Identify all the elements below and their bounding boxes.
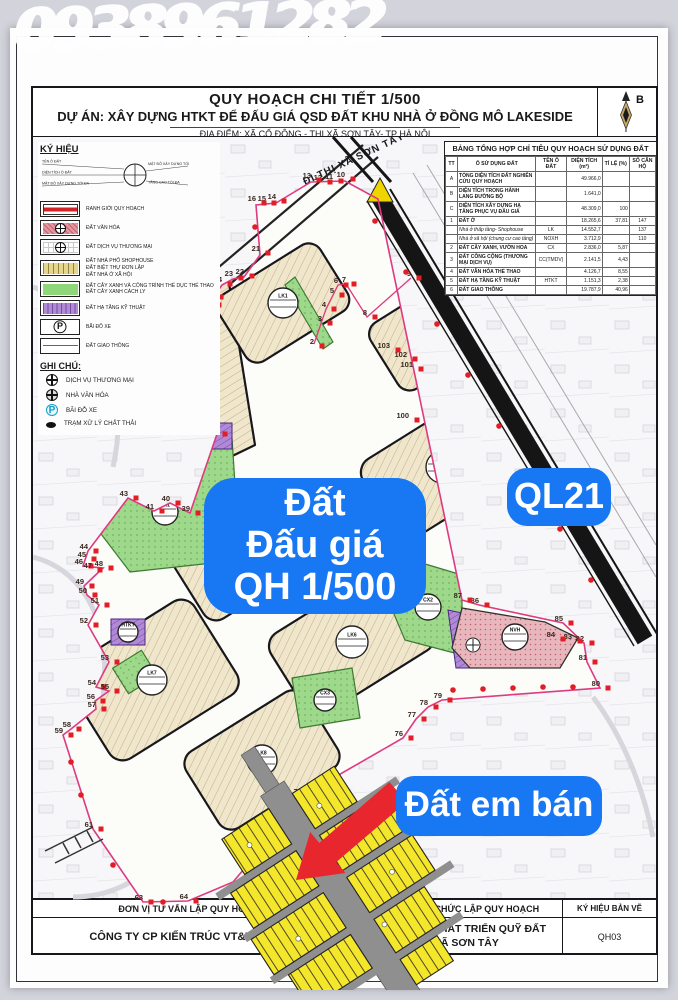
parking-glyph-icon: P — [54, 320, 67, 333]
table-cell — [629, 202, 655, 217]
legend-item-label: ĐẤT HẠ TẦNG KỸ THUẬT — [86, 305, 145, 312]
table-cell: ĐẤT CÂY XANH, VƯỜN HOA — [458, 244, 536, 253]
lot-symbol-diagram: TÊN Ô ĐẤT DIỆN TÍCH Ô ĐẤT MẬT ĐỘ XÂY DỰN… — [40, 157, 190, 193]
agency-name: TRUNG TÂM PHÁT TRIỂN QUỸ ĐẤT THỊ XÃ SƠN … — [351, 918, 563, 955]
table-cell: 4,43 — [602, 253, 629, 268]
compass-north-label: B — [636, 94, 644, 106]
auction-label-line2: Đấu giá — [204, 525, 426, 567]
sheet-code: QH03 — [563, 918, 656, 955]
table-cell: 4.126,7 — [566, 268, 602, 277]
table-cell: ĐẤT Ở — [458, 217, 536, 226]
table-cell: TỔNG DIỆN TÍCH ĐẤT NGHIÊN CỨU QUY HOẠCH — [458, 172, 536, 187]
note-item-label: DỊCH VỤ THƯƠNG MẠI — [66, 377, 134, 384]
lot-note-right-1: MẬT ĐỘ XÂY DỰNG TỐI ĐA (%) — [148, 161, 190, 166]
table-cell: 1 — [446, 217, 458, 226]
title-block: QUY HOẠCH CHI TIẾT 1/500 DỰ ÁN: XÂY DỰNG… — [33, 88, 598, 137]
note-item-label: BÃI ĐỖ XE — [66, 407, 97, 414]
table-cell: 5 — [446, 277, 458, 286]
table-column-header: TT — [446, 157, 458, 172]
table-cell: 110 — [629, 235, 655, 244]
table-cell: 137 — [629, 226, 655, 235]
table-column-header: SỐ CĂN HỘ — [629, 157, 655, 172]
legend-item-label: ĐẤT GIAO THÔNG — [86, 343, 129, 350]
table-column-header: TỈ LỆ (%) — [602, 157, 629, 172]
table-title: BẢNG TỔNG HỢP CHỈ TIÊU QUY HOẠCH SỬ DỤNG… — [445, 142, 656, 156]
table-cell — [629, 277, 655, 286]
table-cell: 6 — [446, 286, 458, 295]
legend-swatch-commerce — [40, 239, 80, 255]
table-row: 2ĐẤT CÂY XANH, VƯỜN HOACX2.836,05,87 — [446, 244, 656, 253]
table-row: Nhà ở thấp tầng- ShophouseLK14.552,7137 — [446, 226, 656, 235]
table-cell — [536, 172, 566, 187]
table-cell — [536, 187, 566, 202]
legend-item: RANH GIỚI QUY HOẠCH — [40, 201, 218, 217]
notes-title: GHI CHÚ: — [40, 361, 218, 371]
table-cell: DIỆN TÍCH TRONG HÀNH LANG ĐƯỜNG BỘ — [458, 187, 536, 202]
agency-name-line1: TRUNG TÂM PHÁT TRIỂN QUỸ ĐẤT — [367, 923, 546, 936]
table-cell: 14.552,7 — [566, 226, 602, 235]
table-cell: A — [446, 172, 458, 187]
legend-item: ĐẤT CÂY XANH VÀ CÔNG TRÌNH THỂ DỤC THỂ T… — [40, 281, 218, 297]
legend-title: KÝ HIỆU — [40, 144, 218, 155]
table-cell: 2.141,5 — [566, 253, 602, 268]
table-cell — [536, 286, 566, 295]
consultant-header: ĐƠN VỊ TƯ VẤN LẬP QUY HOẠCH — [33, 900, 351, 918]
agency-header: CƠ QUAN TỔ CHỨC LẬP QUY HOẠCH — [351, 900, 563, 918]
table-row: 4ĐẤT VĂN HÓA THỂ THAO4.126,78,55 — [446, 268, 656, 277]
legend-swatch-traffic — [40, 338, 80, 354]
table-cell: ĐẤT CÔNG CỘNG (THƯƠNG MẠI DỊCH VỤ) — [458, 253, 536, 268]
consultant-name: CÔNG TY CP KIẾN TRÚC VT&T HÀ NỘI — [33, 918, 351, 955]
note-item: PBÃI ĐỖ XE — [40, 404, 218, 416]
commerce-circle-icon — [46, 374, 58, 386]
table-cell: 2,38 — [602, 277, 629, 286]
culture-circle-icon — [46, 389, 58, 401]
table-cell: 19.787,9 — [566, 286, 602, 295]
project-title: DỰ ÁN: XÂY DỰNG HTKT ĐỂ ĐẤU GIÁ QSD ĐẤT … — [33, 109, 597, 124]
table-cell — [629, 253, 655, 268]
waste-plant-icon — [46, 422, 56, 428]
table-row: ATỔNG DIỆN TÍCH ĐẤT NGHIÊN CỨU QUY HOẠCH… — [446, 172, 656, 187]
table-cell: ĐẤT GIAO THÔNG — [458, 286, 536, 295]
culture-glyph-icon — [55, 223, 66, 234]
table-cell: CX — [536, 244, 566, 253]
agency-name-line2: THỊ XÃ SƠN TÂY — [414, 937, 499, 950]
legend-items: RANH GIỚI QUY HOẠCHĐẤT VĂN HÓAĐẤT DỊCH V… — [40, 201, 218, 354]
table-column-header: Ô SỬ DỤNG ĐẤT — [458, 157, 536, 172]
compass-box: B — [598, 88, 656, 137]
north-compass-icon: B — [598, 88, 656, 135]
table-cell — [602, 226, 629, 235]
table-cell: NOXH — [536, 235, 566, 244]
commerce-glyph-icon — [55, 242, 66, 253]
table-column-header: DIỆN TÍCH (m²) — [566, 157, 602, 172]
table-cell: 4 — [446, 268, 458, 277]
table-cell: B — [446, 187, 458, 202]
legend-item: ĐẤT DỊCH VỤ THƯƠNG MẠI — [40, 239, 218, 255]
legend-swatch-parking: P — [40, 319, 80, 335]
table-cell — [536, 202, 566, 217]
auction-label-line1: Đất — [204, 483, 426, 525]
lot-note-left-1: TÊN Ô ĐẤT — [42, 159, 62, 164]
note-item-label: NHÀ VĂN HÓA — [66, 392, 109, 399]
table-cell — [602, 172, 629, 187]
table-cell: 2.836,0 — [566, 244, 602, 253]
table-column-header: TÊN Ô ĐẤT — [536, 157, 566, 172]
table-cell: 18.265,6 — [566, 217, 602, 226]
lot-note-right-2: TẦNG CAO TỐI ĐA — [148, 180, 180, 185]
table-cell: 40,96 — [602, 286, 629, 295]
table-cell — [629, 244, 655, 253]
note-item: TRẠM XỬ LÝ CHẤT THẢI — [40, 419, 218, 428]
table-cell — [629, 187, 655, 202]
legend-swatch-culture — [40, 220, 80, 236]
legend-item-label: BÃI ĐỖ XE — [86, 324, 111, 331]
legend-item-label: ĐẤT VĂN HÓA — [86, 225, 120, 232]
table-cell: 2 — [446, 244, 458, 253]
landuse-summary-table: BẢNG TỔNG HỢP CHỈ TIÊU QUY HOẠCH SỬ DỤNG… — [444, 141, 657, 296]
table-cell — [446, 235, 458, 244]
table-cell: 49.966,0 — [566, 172, 602, 187]
table-row: 5ĐẤT HẠ TẦNG KỸ THUẬTHTKT1.151,32,38 — [446, 277, 656, 286]
drawing-type-title: QUY HOẠCH CHI TIẾT 1/500 — [33, 91, 597, 108]
table-cell: 3 — [446, 253, 458, 268]
legend-item: ĐẤT VĂN HÓA — [40, 220, 218, 236]
parking-p-icon: P — [46, 404, 58, 416]
table-cell: ĐẤT HẠ TẦNG KỸ THUẬT — [458, 277, 536, 286]
table-cell: 48.309,0 — [566, 202, 602, 217]
table-header-row: TTÔ SỬ DỤNG ĐẤTTÊN Ô ĐẤTDIỆN TÍCH (m²)TỈ… — [446, 157, 656, 172]
watermark-phone: 0938961282 — [14, 0, 383, 64]
lot-note-left-3: MẬT ĐỘ XÂY DỰNG TỐI ĐA — [42, 181, 90, 186]
table-cell: 147 — [629, 217, 655, 226]
legend-item-label: ĐẤT DỊCH VỤ THƯƠNG MẠI — [86, 244, 152, 251]
table-cell: 37,81 — [602, 217, 629, 226]
table-cell — [536, 217, 566, 226]
table-cell: 100 — [602, 202, 629, 217]
location-subtitle: ĐỊA ĐIỂM: XÃ CỔ ĐÔNG - THỊ XÃ SƠN TÂY- T… — [170, 127, 461, 139]
table-cell: CC(TMDV) — [536, 253, 566, 268]
table-cell: 1.151,3 — [566, 277, 602, 286]
notes-items: DỊCH VỤ THƯƠNG MẠINHÀ VĂN HÓAPBÃI ĐỖ XET… — [40, 374, 218, 428]
legend-swatch-boundary — [40, 201, 80, 217]
note-item: DỊCH VỤ THƯƠNG MẠI — [40, 374, 218, 386]
legend-item-label: RANH GIỚI QUY HOẠCH — [86, 206, 144, 213]
table-cell: DIỆN TÍCH XÂY DỰNG HẠ TẦNG PHỤC VỤ ĐẤU G… — [458, 202, 536, 217]
legend-swatch-green — [40, 281, 80, 297]
sheet-code-header: KÝ HIỆU BẢN VẼ — [563, 900, 656, 918]
legend-panel: KÝ HIỆU TÊN Ô ĐẤT DIỆN TÍCH Ô ĐẤT MẬT ĐỘ… — [38, 142, 220, 435]
legend-item: PBÃI ĐỖ XE — [40, 319, 218, 335]
table-row: 3ĐẤT CÔNG CỘNG (THƯƠNG MẠI DỊCH VỤ)CC(TM… — [446, 253, 656, 268]
table-row: BDIỆN TÍCH TRONG HÀNH LANG ĐƯỜNG BỘ1.641… — [446, 187, 656, 202]
photo-of-planning-map: { "watermark": "0938961282", "header": {… — [0, 0, 678, 1000]
table-cell: 5,87 — [602, 244, 629, 253]
legend-swatch-shophouse — [40, 260, 80, 276]
table-row: Nhà ở xã hội (chung cư cao tầng)NOXH3.71… — [446, 235, 656, 244]
legend-swatch-infra — [40, 300, 80, 316]
table-cell: HTKT — [536, 277, 566, 286]
note-item-label: TRẠM XỬ LÝ CHẤT THẢI — [64, 420, 136, 427]
table-row: 1ĐẤT Ở18.265,637,81147 — [446, 217, 656, 226]
note-item: NHÀ VĂN HÓA — [40, 389, 218, 401]
table-cell: 3.712,9 — [566, 235, 602, 244]
table-cell: Nhà ở thấp tầng- Shophouse — [458, 226, 536, 235]
table-row: 6ĐẤT GIAO THÔNG19.787,940,96 — [446, 286, 656, 295]
table-cell — [602, 235, 629, 244]
table-cell — [536, 268, 566, 277]
legend-item: ĐẤT NHÀ PHỐ SHOPHOUSEĐẤT BIỆT THỰ ĐƠN LẬ… — [40, 258, 218, 278]
table-cell — [629, 286, 655, 295]
auction-area-label: Đất Đấu giá QH 1/500 — [204, 478, 426, 614]
lot-note-left-2: DIỆN TÍCH Ô ĐẤT — [42, 170, 73, 175]
footer-title-block: ĐƠN VỊ TƯ VẤN LẬP QUY HOẠCH CƠ QUAN TỔ C… — [33, 898, 656, 953]
table-cell: ĐẤT VĂN HÓA THỂ THAO — [458, 268, 536, 277]
table-row: CDIỆN TÍCH XÂY DỰNG HẠ TẦNG PHỤC VỤ ĐẤU … — [446, 202, 656, 217]
legend-item-label: ĐẤT CÂY XANH VÀ CÔNG TRÌNH THỂ DỤC THỂ T… — [86, 283, 214, 297]
highway-label: QL21 — [507, 468, 611, 526]
legend-item: ĐẤT GIAO THÔNG — [40, 338, 218, 354]
table-cell — [629, 268, 655, 277]
table-cell — [446, 226, 458, 235]
table-cell: 8,55 — [602, 268, 629, 277]
legend-item-label: ĐẤT NHÀ PHỐ SHOPHOUSEĐẤT BIỆT THỰ ĐƠN LẬ… — [86, 258, 153, 278]
table-cell — [602, 187, 629, 202]
legend-item: ĐẤT HẠ TẦNG KỸ THUẬT — [40, 300, 218, 316]
table-cell: C — [446, 202, 458, 217]
table-cell: LK — [536, 226, 566, 235]
table-cell: 1.641,0 — [566, 187, 602, 202]
sale-label: Đất em bán — [396, 776, 602, 836]
table-cell: Nhà ở xã hội (chung cư cao tầng) — [458, 235, 536, 244]
table-cell — [629, 172, 655, 187]
auction-label-line3: QH 1/500 — [204, 567, 426, 609]
